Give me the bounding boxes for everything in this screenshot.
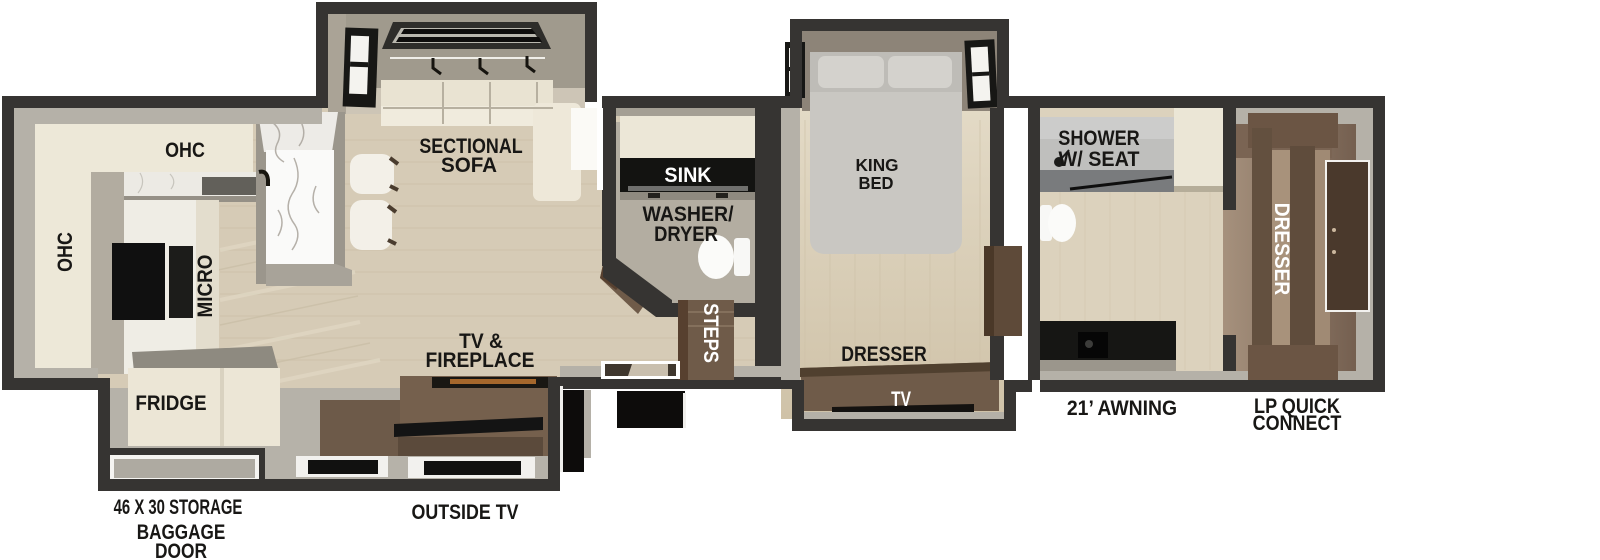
svg-text:TV: TV — [891, 387, 911, 411]
svg-text:OHC: OHC — [54, 232, 78, 272]
svg-text:FIREPLACE: FIREPLACE — [426, 349, 535, 372]
svg-text:W/ SEAT: W/ SEAT — [1059, 149, 1140, 172]
svg-text:DOOR: DOOR — [155, 541, 207, 560]
svg-text:OHC: OHC — [165, 139, 205, 163]
svg-text:FRIDGE: FRIDGE — [135, 392, 206, 415]
svg-text:DRYER: DRYER — [654, 223, 718, 246]
svg-text:DRESSER: DRESSER — [841, 343, 927, 367]
svg-text:21’ AWNING: 21’ AWNING — [1067, 397, 1177, 420]
svg-text:BED: BED — [859, 172, 894, 193]
svg-text:CONNECT: CONNECT — [1253, 412, 1342, 436]
svg-text:SOFA: SOFA — [441, 154, 497, 177]
svg-text:DRESSER: DRESSER — [1270, 203, 1293, 296]
svg-text:SHOWER: SHOWER — [1058, 127, 1140, 151]
svg-text:STEPS: STEPS — [699, 303, 722, 363]
svg-text:OUTSIDE TV: OUTSIDE TV — [412, 501, 519, 525]
svg-text:SINK: SINK — [664, 164, 711, 187]
svg-text:MICRO: MICRO — [194, 255, 217, 318]
svg-text:46 X 30 STORAGE: 46 X 30 STORAGE — [114, 496, 243, 519]
